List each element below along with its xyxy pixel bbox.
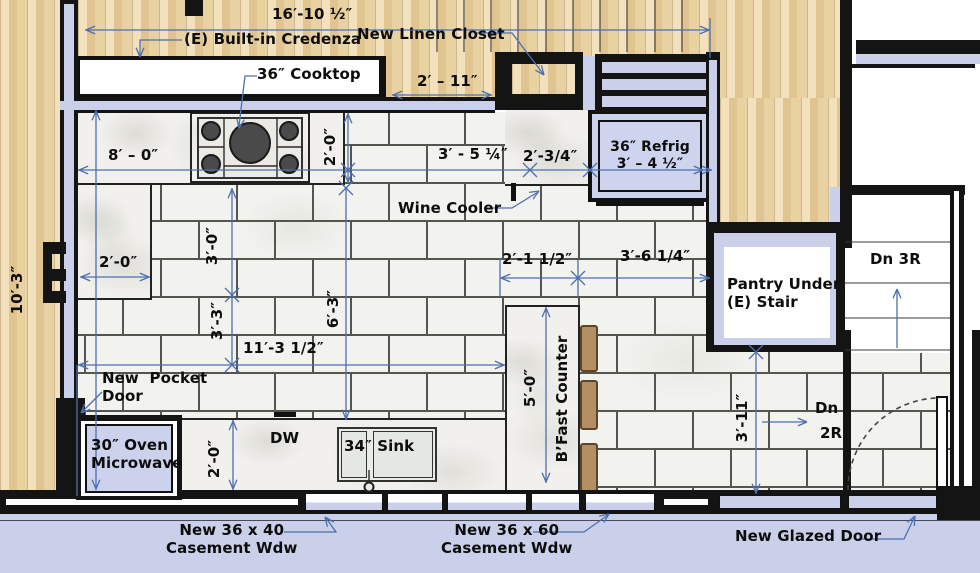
- dim-linen-offset: 2′ – 11″: [417, 72, 478, 90]
- window-40-label: New 36 x 40Casement Wdw: [166, 521, 297, 558]
- dim-counter-depth: 2′-0″: [321, 128, 339, 166]
- dim-left-wall: 10′-3″: [8, 266, 26, 315]
- dim-counter-top-w: 2′-1 1/2″: [502, 250, 572, 268]
- dim-floor-main: 11′-3 1/2″: [243, 339, 324, 357]
- dim-bfast-len: 5′-0″: [521, 369, 539, 407]
- cooktop-burner: [202, 122, 220, 140]
- dim-left-cab-b: 3′-3″: [208, 302, 226, 340]
- pocket-door-label: New PocketDoor: [102, 369, 207, 406]
- dim-counter-run: 8′ – 0″: [108, 146, 158, 164]
- dn2r-label-2r: 2R: [820, 424, 842, 442]
- bfast-counter-label: B’Fast Counter: [553, 336, 571, 463]
- dim-stair-drop: 3′-11″: [733, 394, 751, 443]
- wine-cooler-label: Wine Cooler: [398, 199, 501, 217]
- sink-faucet: [365, 483, 374, 492]
- dim-floor-mid: 6′-3″: [324, 290, 342, 328]
- dim-alcove: 2′-0″: [99, 253, 137, 271]
- linen-closet-label: New Linen Closet: [357, 25, 505, 43]
- dn2r-label-dn: Dn: [815, 399, 838, 417]
- dim-base-depth: 2′-0″: [205, 440, 223, 478]
- dim-cooktop-to-cooler: 3′ - 5 ¼″: [438, 145, 508, 163]
- dw-label: DW: [270, 429, 299, 447]
- glazed-door-label: New Glazed Door: [735, 527, 881, 545]
- dim-counter-to-pantry: 3′-6 1/4″: [620, 247, 690, 265]
- cooktop-label: 36″ Cooktop: [257, 65, 361, 83]
- dn3r-label: Dn 3R: [870, 250, 921, 268]
- door-swing-arc: [848, 398, 940, 490]
- kitchen-floor-plan: 36″ Refrig 3′ – 4 ½″: [0, 0, 980, 573]
- dim-left-cab-a: 3′-0″: [203, 227, 221, 265]
- pantry-label: Pantry Under(E) Stair: [727, 275, 840, 312]
- dim-cooler-to-refrig: 2′-3/4″: [523, 147, 577, 165]
- oven-label: 30″ OvenMicrowave: [91, 436, 183, 473]
- credenza-label: (E) Built-in Credenza: [184, 30, 361, 48]
- sink-label: 34″ Sink: [344, 437, 414, 455]
- cooktop-burner: [280, 122, 298, 140]
- cooktop-burner-large: [230, 123, 270, 163]
- window-60-label: New 36 x 60Casement Wdw: [441, 521, 572, 558]
- dim-overall-top: 16′-10 ½″: [272, 5, 352, 23]
